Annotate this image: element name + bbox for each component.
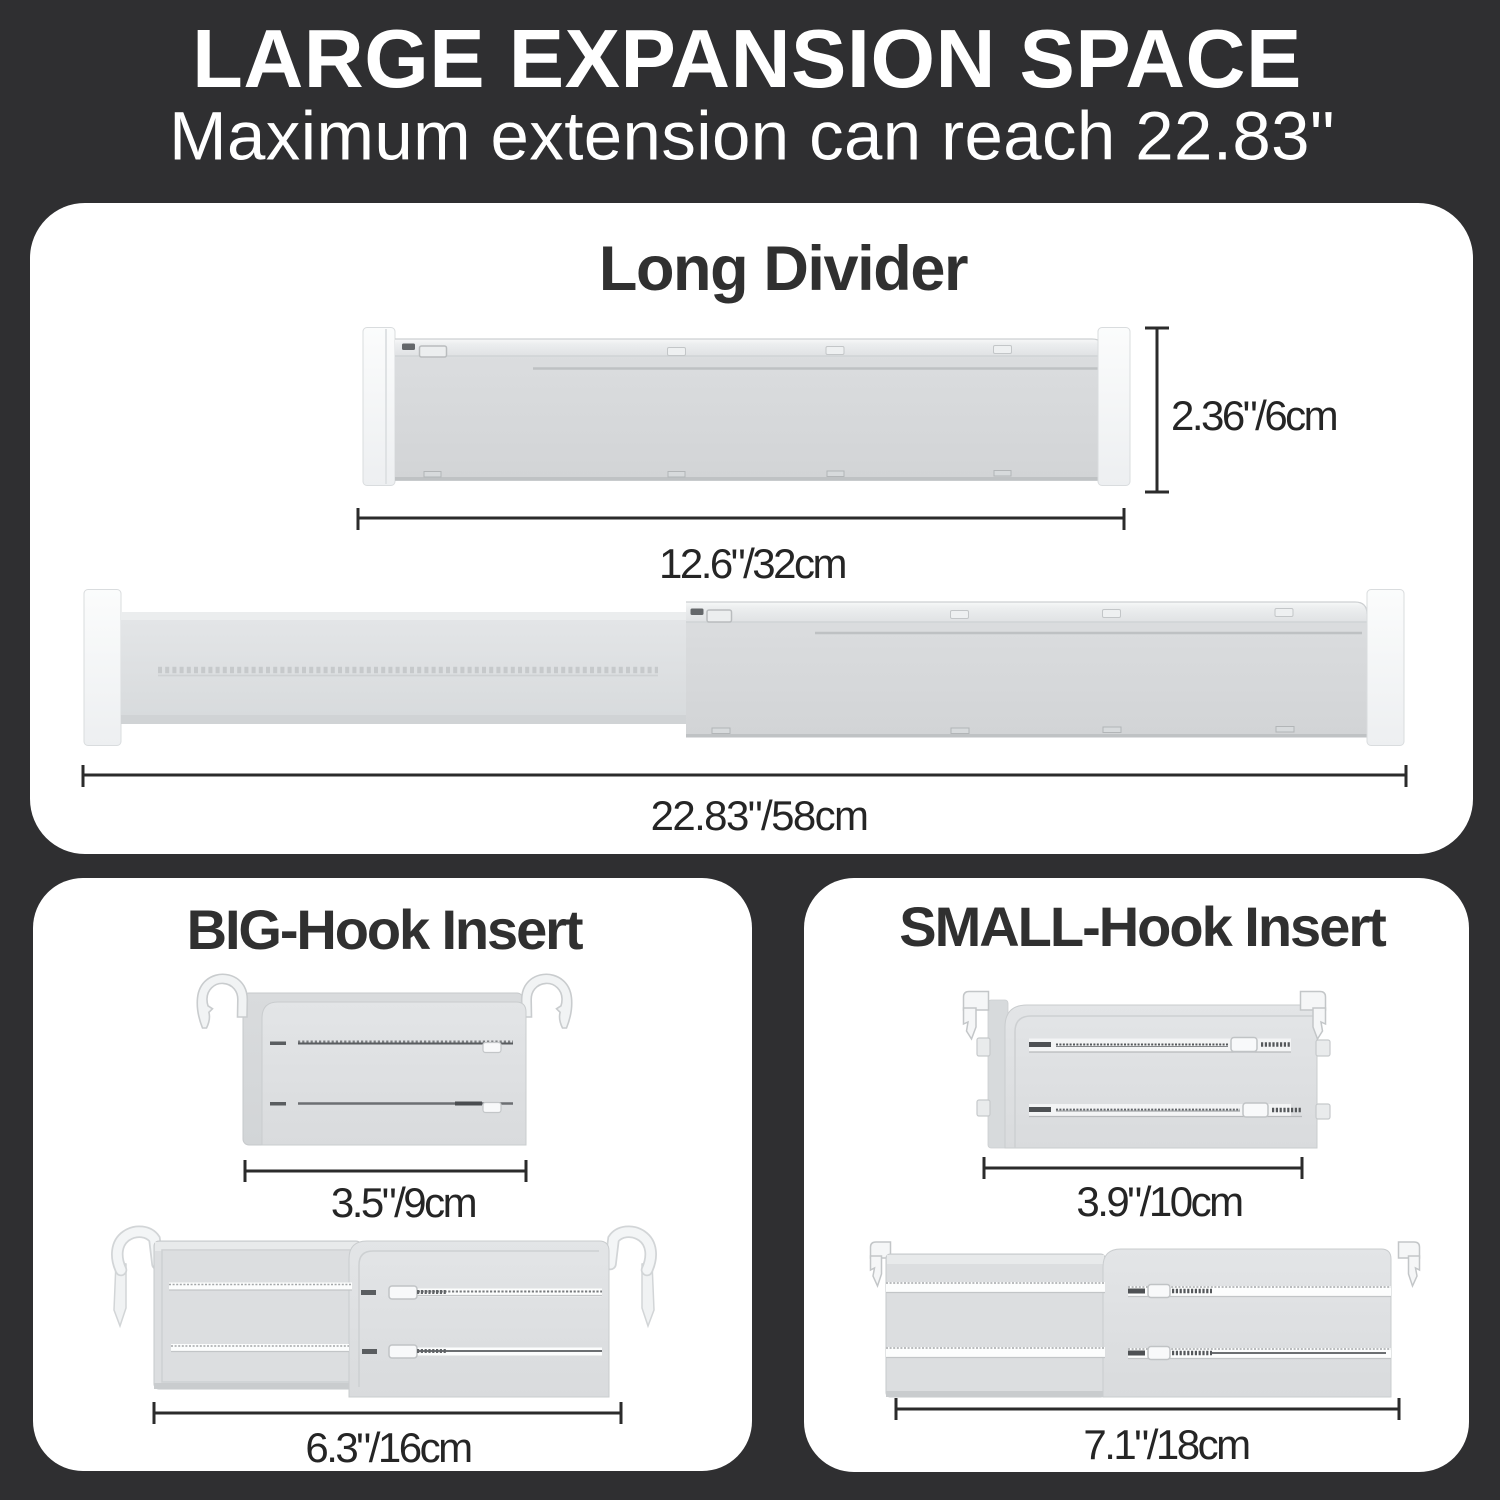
- svg-text:6.3"/16cm: 6.3"/16cm: [305, 1424, 471, 1471]
- svg-text:Long Divider: Long Divider: [599, 234, 968, 304]
- svg-text:BIG-Hook Insert: BIG-Hook Insert: [187, 898, 583, 961]
- svg-text:22.83"/58cm: 22.83"/58cm: [651, 792, 868, 839]
- svg-text:7.1"/18cm: 7.1"/18cm: [1083, 1421, 1249, 1468]
- svg-text:3.5"/9cm: 3.5"/9cm: [331, 1179, 476, 1226]
- svg-text:SMALL-Hook Insert: SMALL-Hook Insert: [899, 895, 1386, 958]
- svg-text:2.36"/6cm: 2.36"/6cm: [1171, 392, 1337, 439]
- svg-text:12.6"/32cm: 12.6"/32cm: [659, 540, 846, 587]
- svg-text:Maximum extension can reach 22: Maximum extension can reach 22.83": [169, 98, 1335, 175]
- svg-text:LARGE EXPANSION SPACE: LARGE EXPANSION SPACE: [192, 12, 1302, 105]
- svg-text:3.9"/10cm: 3.9"/10cm: [1076, 1178, 1242, 1225]
